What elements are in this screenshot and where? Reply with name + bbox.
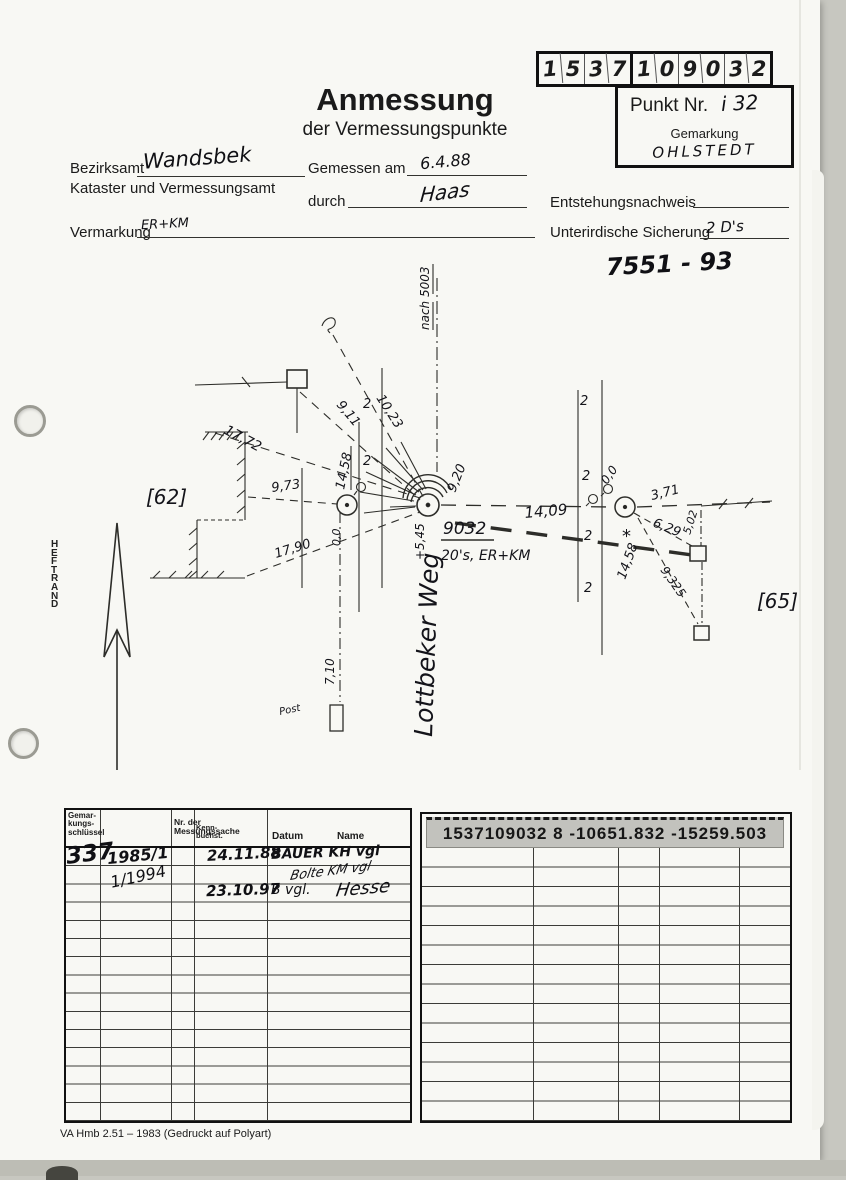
entry-name-2: B vgl.: [271, 882, 311, 898]
survey-point-center: [360, 442, 451, 516]
measure-5-02: 5,02: [680, 509, 700, 536]
gemarkung-box: Gemarkung OHLSTEDT: [615, 124, 794, 168]
empty-rows: [422, 848, 790, 1121]
code-digit: 1: [538, 53, 564, 85]
gemessen-line: [407, 175, 527, 176]
measure-9-325: 9,325: [658, 564, 689, 600]
vermarkung-label: Vermarkung: [70, 224, 151, 241]
col-header-gemarkungsschluessel: Gemar- kungs- schlüssel: [68, 812, 99, 837]
measure-9-73: 9,73: [270, 477, 301, 496]
col-header-name: Name: [337, 832, 417, 843]
bezirksamt-label: Bezirksamt: [70, 160, 144, 177]
survey-sketch: nach 5003 10,23 9,11 17,72 14,58 9,73 17…: [0, 250, 846, 795]
measure-17-90: 17,90: [273, 537, 313, 562]
code-digit: 0: [656, 54, 679, 84]
boundary-marker: 2: [363, 454, 371, 469]
code-digit: 3: [724, 53, 750, 85]
gemarkung-value: OHLSTEDT: [618, 139, 792, 163]
nach-5003-label: nach 5003: [418, 266, 432, 330]
boundary-marker: 2: [584, 529, 592, 544]
street-name: Lottbeker Weg: [409, 552, 444, 737]
boundary-marker: 2: [582, 469, 590, 484]
boundary-marker: 2: [363, 397, 371, 412]
sketch-curl-symbol: [322, 318, 335, 333]
code-digit: 7: [608, 54, 633, 84]
durch-line: [348, 207, 527, 208]
col-header-datum: Datum: [272, 832, 332, 843]
boundary-marker: 2: [584, 581, 592, 596]
durch-label: durch: [308, 193, 346, 210]
code-digit: 2: [748, 54, 770, 84]
measure-14-09: 14,09: [524, 500, 568, 522]
measure-7-10: 7,10: [323, 658, 337, 685]
measure-0-0-right: 0,0: [598, 463, 621, 487]
boundary-marker: 2: [580, 394, 588, 409]
punkt-nr-label: Punkt Nr.: [630, 95, 708, 117]
form-footer: VA Hmb 2.51 – 1983 (Gedruckt auf Polyart…: [60, 1128, 271, 1140]
punkt-nr-value: i 32: [720, 90, 759, 116]
vermarkung-value: ER+KM: [141, 216, 190, 233]
gemarkung-label: Gemarkung: [618, 126, 791, 141]
measure-3-71: 3,71: [649, 482, 681, 504]
scanner-background: [0, 1160, 846, 1176]
gemessen-label: Gemessen am: [308, 160, 406, 177]
coordinate-sticker: 1537109032 8 -10651.832 -15259.503: [426, 817, 784, 848]
measure-14-58-left: 14,58: [333, 451, 355, 491]
point-id-9032: 9032: [443, 519, 486, 539]
code-digit: 9: [678, 53, 704, 85]
measure-10-23: 10,23: [373, 392, 406, 431]
ref-62: [62]: [146, 485, 187, 509]
entry-datum-2: 23.10.97: [206, 880, 281, 901]
sicherung-value: 2 D's: [706, 217, 745, 237]
measure-6-29: 6,29: [651, 516, 683, 541]
code-digit: 3: [584, 53, 610, 85]
code-digit: 1: [632, 53, 658, 85]
asterisk-mark: *: [622, 526, 631, 547]
form-title: Anmessung: [280, 82, 530, 118]
sicherung-label: Unterirdische Sicherung: [550, 224, 710, 241]
code-digit: 0: [702, 54, 725, 84]
form-subtitle: der Vermessungspunkte: [280, 119, 530, 141]
measure-17-72: 17,72: [221, 422, 264, 455]
sketch-labels: nach 5003 10,23 9,11 17,72 14,58 9,73 17…: [146, 266, 798, 737]
punkt-nr-box: Punkt Nr. i 32: [615, 85, 794, 127]
measure-0-0-left: 0,0: [330, 529, 343, 547]
ref-65: [65]: [757, 589, 798, 613]
entstehung-line: [693, 207, 789, 208]
north-arrow: [104, 523, 130, 770]
survey-point-right: [586, 485, 635, 518]
entstehung-label: Entstehungsnachweis: [550, 194, 696, 211]
bezirksamt-line: [137, 176, 305, 177]
kataster-label: Kataster und Vermessungsamt: [70, 180, 275, 197]
point-note: 20's, ER+KM: [441, 548, 530, 564]
measure-14-58-right: 14,58: [615, 541, 642, 581]
point-code-grid: 1 5 3 7 1 0 9 0 3 2: [536, 51, 773, 87]
sicherung-line: [700, 238, 789, 239]
vermarkung-line: [137, 237, 535, 238]
scan-artifact: [46, 1166, 78, 1180]
code-digit: 5: [562, 54, 585, 84]
col-header-kennbuchst: Kenn- buchst.: [196, 824, 222, 840]
arc-measure-9-20: 9,20: [445, 462, 470, 494]
post-label: Post: [278, 703, 302, 718]
coordinates-table: 1537109032 8 -10651.832 -15259.503: [420, 812, 792, 1123]
